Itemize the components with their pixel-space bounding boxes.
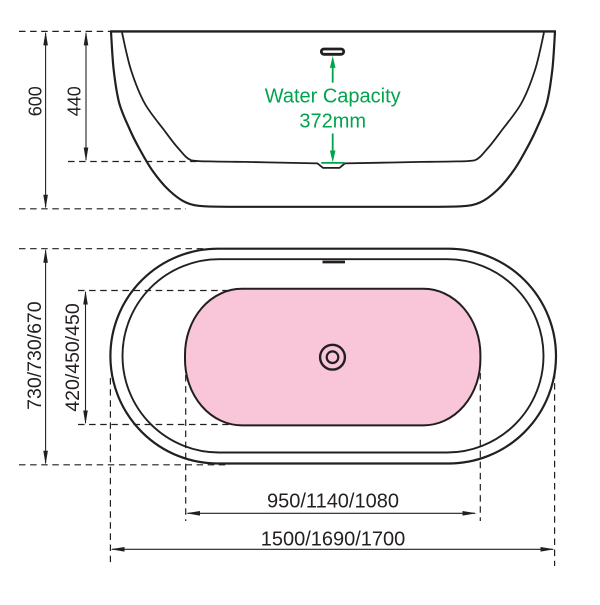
svg-text:1500/1690/1700: 1500/1690/1700 [261,529,406,551]
svg-text:372mm: 372mm [299,111,366,133]
svg-text:600: 600 [25,86,45,116]
svg-text:730/730/670: 730/730/670 [24,301,46,410]
svg-text:950/1140/1080: 950/1140/1080 [267,491,399,513]
svg-text:Water Capacity: Water Capacity [265,86,401,108]
svg-text:420/450/450: 420/450/450 [62,303,84,412]
svg-text:440: 440 [64,86,84,116]
